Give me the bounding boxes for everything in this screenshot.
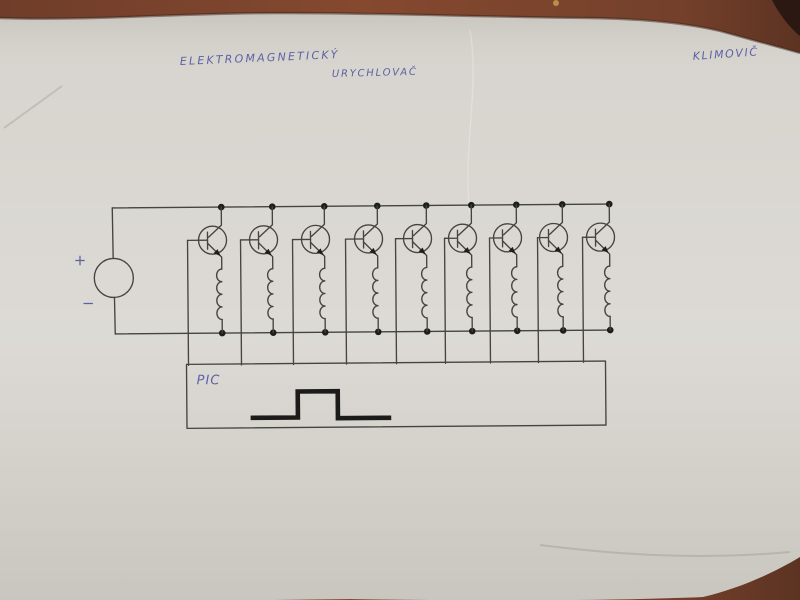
paper-shading	[0, 13, 800, 600]
photo-of-schematic: PIC + − ELEKTROMAGNETICKÝ URYCHLOVAČ KLI…	[0, 0, 800, 600]
source-bottom-lead	[114, 297, 115, 334]
source-top-lead	[112, 208, 113, 259]
source-minus-label: −	[82, 294, 95, 312]
scene-canvas: PIC + − ELEKTROMAGNETICKÝ URYCHLOVAČ KLI…	[0, 0, 800, 600]
pic-box-label: PIC	[197, 373, 221, 388]
table-speck	[553, 0, 559, 6]
source-plus-label: +	[74, 251, 87, 269]
